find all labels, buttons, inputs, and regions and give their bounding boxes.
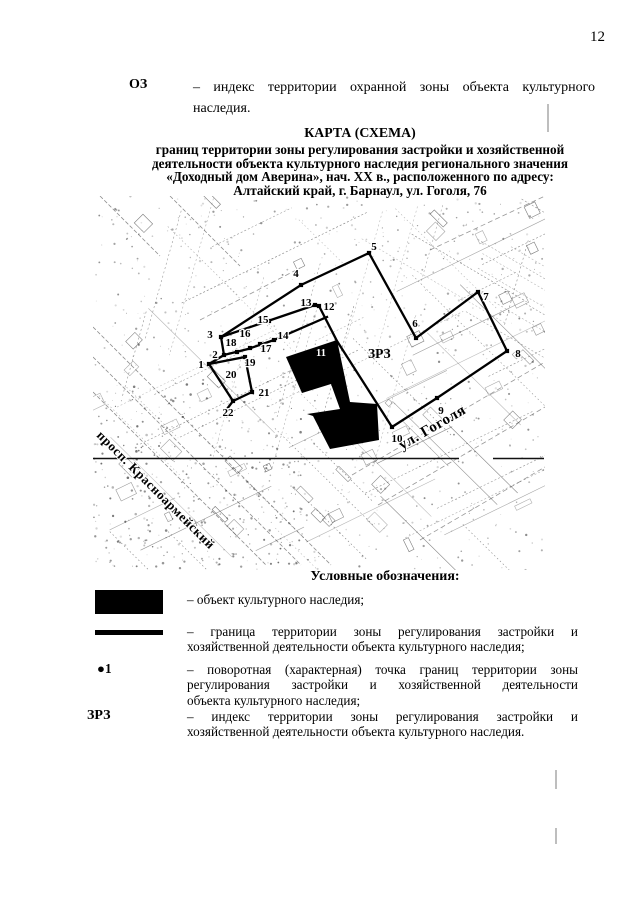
zone-index-label: ЗРЗ bbox=[368, 346, 391, 361]
point-label-22: 22 bbox=[223, 407, 235, 419]
point-label-17: 17 bbox=[261, 343, 273, 355]
point-label-15: 15 bbox=[258, 314, 270, 326]
definition-text: – индекс территории охранной зоны объект… bbox=[193, 77, 595, 119]
point-label-10: 10 bbox=[392, 433, 404, 445]
legend-item-heritage-object: – объект культурного наследия; bbox=[187, 592, 578, 607]
legend-heading: Условные обозначения: bbox=[187, 569, 583, 585]
title-line: деятельности объекта культурного наследи… bbox=[125, 157, 595, 170]
point-label-18: 18 bbox=[226, 337, 238, 349]
street-label-gogolya: ул. Гоголя bbox=[396, 402, 469, 453]
point-label-20: 20 bbox=[226, 369, 238, 381]
legend-symbol-turning-point: ●1 bbox=[97, 661, 112, 677]
point-label-8: 8 bbox=[515, 348, 521, 360]
point-label-9: 9 bbox=[438, 405, 444, 417]
point-label-4: 4 bbox=[293, 268, 299, 280]
point-label-5: 5 bbox=[371, 241, 377, 253]
legend-line: объекта культурного наследия; bbox=[187, 693, 578, 708]
legend-item-boundary: – граница территории зоны регулирования … bbox=[187, 624, 578, 655]
legend-symbol-zrz-index: ЗРЗ bbox=[87, 708, 111, 724]
page-number: 12 bbox=[590, 29, 605, 46]
title-line: КАРТА (СХЕМА) bbox=[125, 126, 595, 139]
definition-line: – индекс территории охранной зоны объект… bbox=[193, 77, 595, 98]
street-label-krasnoarmeysky: просп. Красноармейский bbox=[94, 428, 218, 552]
point-labels: 123456789101213141516171819202122 bbox=[198, 241, 521, 445]
legend-line: – граница территории зоны регулирования … bbox=[187, 624, 578, 639]
vertex-markers bbox=[207, 251, 509, 429]
map-title: КАРТА (СХЕМА) границ территории зоны рег… bbox=[125, 126, 595, 197]
title-line: «Доходный дом Аверина», нач. XX в., расп… bbox=[125, 170, 595, 183]
point-label-11: 11 bbox=[316, 348, 326, 359]
definition-term: ОЗ bbox=[129, 77, 147, 93]
document-page: 12345678910121314151617181920212211ЗРЗул… bbox=[0, 0, 640, 905]
legend-line: – объект культурного наследия; bbox=[187, 592, 578, 607]
zone-boundary bbox=[209, 253, 507, 427]
point-label-3: 3 bbox=[207, 329, 213, 341]
legend-item-turning-point: – поворотная (характерная) точка границ … bbox=[187, 662, 578, 708]
legend-symbol-boundary-line bbox=[95, 630, 163, 635]
legend-item-zrz-index: – индекс территории зоны регулирования з… bbox=[187, 709, 578, 740]
legend-line: хозяйственной деятельности объекта культ… bbox=[187, 639, 578, 654]
point-label-16: 16 bbox=[240, 328, 252, 340]
point-label-19: 19 bbox=[245, 357, 257, 369]
map-background-texture bbox=[87, 192, 640, 656]
point-label-12: 12 bbox=[324, 301, 336, 313]
point-label-6: 6 bbox=[412, 318, 418, 330]
definition-line: наследия. bbox=[193, 98, 595, 119]
legend-line: хозяйственной деятельности объекта культ… bbox=[187, 724, 578, 739]
heritage-building-footprint bbox=[286, 340, 379, 449]
point-label-7: 7 bbox=[483, 291, 489, 303]
point-label-2: 2 bbox=[212, 349, 218, 361]
title-line: Алтайский край, г. Барнаул, ул. Гоголя, … bbox=[125, 184, 595, 197]
legend-line: регулирования застройки и хозяйственной … bbox=[187, 677, 578, 692]
point-label-1: 1 bbox=[198, 359, 204, 371]
title-line: границ территории зоны регулирования зас… bbox=[125, 143, 595, 156]
point-label-14: 14 bbox=[278, 330, 290, 342]
point-label-21: 21 bbox=[259, 387, 270, 399]
point-label-13: 13 bbox=[301, 297, 313, 309]
legend-symbol-heritage-object bbox=[95, 590, 163, 614]
legend-line: – поворотная (характерная) точка границ … bbox=[187, 662, 578, 677]
legend-line: – индекс территории зоны регулирования з… bbox=[187, 709, 578, 724]
